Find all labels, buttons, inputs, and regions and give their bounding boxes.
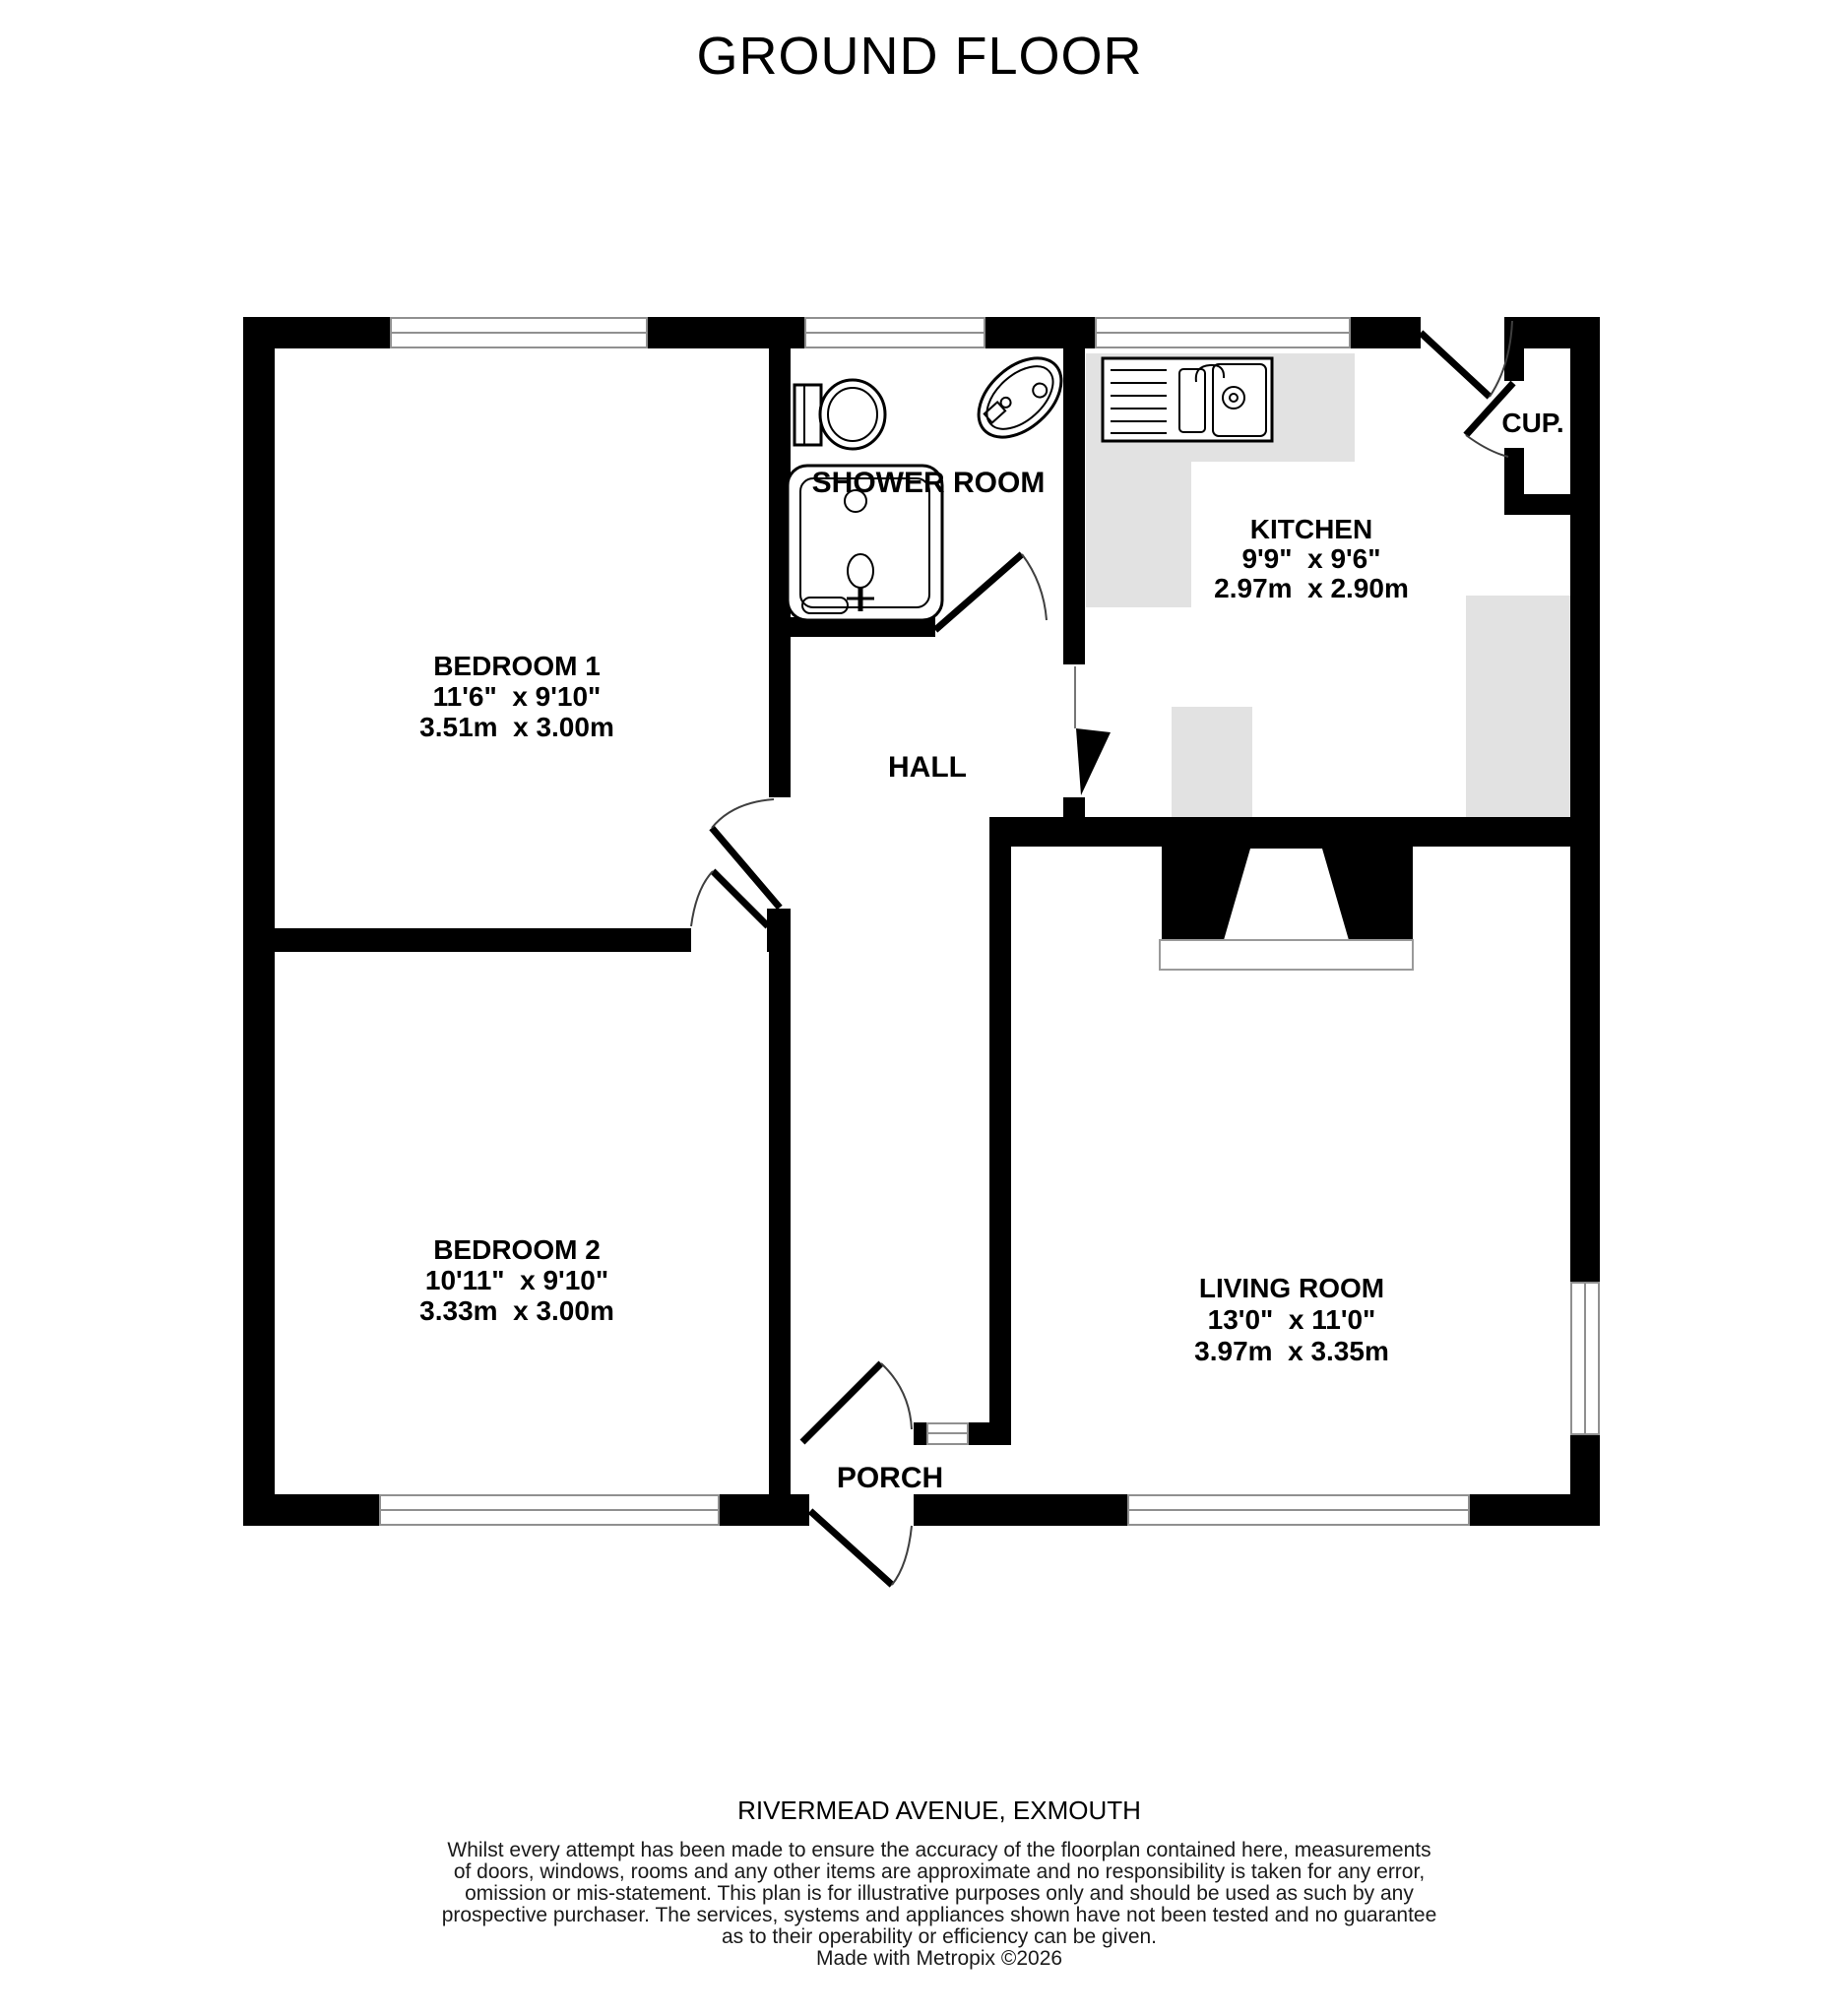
page-title: GROUND FLOOR <box>696 27 1142 86</box>
living-room-name: LIVING ROOM <box>1199 1273 1384 1303</box>
wall-kitchen-living <box>989 817 1570 847</box>
living-room-imperial: 13'0" x 11'0" <box>1208 1304 1376 1335</box>
living-room-side-window <box>1571 1283 1599 1434</box>
toilet-icon <box>794 380 885 449</box>
disclaimer-line4: prospective purchaser. The services, sys… <box>442 1904 1437 1926</box>
disclaimer-line1: Whilst every attempt has been made to en… <box>447 1839 1430 1861</box>
porch-inner-door <box>802 1363 912 1442</box>
wall-shower-kitchen <box>1063 348 1085 664</box>
bedroom1-window <box>391 318 647 347</box>
bedroom2-window <box>380 1495 719 1525</box>
bedroom1-label: BEDROOM 1 11'6" x 9'10" 3.51m x 3.00m <box>419 651 614 742</box>
shower-room-label: SHOWER ROOM <box>812 467 1046 499</box>
disclaimer-line5: as to their operability or efficiency ca… <box>722 1925 1157 1948</box>
wall-top-seg2 <box>647 317 805 348</box>
wall-bottom-seg2 <box>719 1494 809 1526</box>
cup-wall-bottom <box>1504 494 1570 515</box>
living-room-metric: 3.97m x 3.35m <box>1194 1336 1389 1366</box>
wall-hall-left-lower <box>769 952 791 1526</box>
disclaimer: Whilst every attempt has been made to en… <box>442 1839 1437 1970</box>
wall-living-left <box>989 817 1011 1445</box>
bedroom1-name: BEDROOM 1 <box>433 651 601 681</box>
address: RIVERMEAD AVENUE, EXMOUTH <box>737 1795 1141 1825</box>
kitchen-metric: 2.97m x 2.90m <box>1214 573 1409 603</box>
cupboard-label: CUP. <box>1501 408 1563 438</box>
shower-room-door <box>935 554 1047 630</box>
living-room-bottom-window <box>1128 1495 1469 1525</box>
bedroom2-imperial: 10'11" x 9'10" <box>425 1265 608 1295</box>
kitchen-sink-icon <box>1103 358 1272 441</box>
wall-porch-top-pier1 <box>914 1422 927 1445</box>
front-door <box>810 1511 912 1585</box>
counter-bottom-right <box>1466 596 1570 817</box>
porch-label: PORCH <box>837 1462 943 1494</box>
wall-right-upper <box>1570 317 1600 1283</box>
kitchen-label: KITCHEN 9'9" x 9'6" 2.97m x 2.90m <box>1214 514 1409 603</box>
kitchen-window <box>1096 318 1350 347</box>
fireplace <box>1160 847 1413 970</box>
bedroom1-door <box>712 799 780 908</box>
hearth <box>1160 940 1413 970</box>
wall-hall-pier <box>767 909 791 952</box>
hall-label: HALL <box>888 751 967 784</box>
kitchen-imperial: 9'9" x 9'6" <box>1241 543 1380 574</box>
wall-bottom-seg1 <box>243 1494 380 1526</box>
bedroom2-name: BEDROOM 2 <box>433 1234 601 1265</box>
living-room-label: LIVING ROOM 13'0" x 11'0" 3.97m x 3.35m <box>1194 1273 1389 1366</box>
basin-icon <box>964 343 1076 453</box>
wall-porch-top-pier2 <box>968 1422 989 1445</box>
bedroom2-label: BEDROOM 2 10'11" x 9'10" 3.33m x 3.00m <box>419 1234 614 1326</box>
kitchen-name: KITCHEN <box>1250 514 1372 544</box>
metropix-credit: Made with Metropix ©2026 <box>816 1947 1062 1970</box>
wall-top-seg1 <box>243 317 391 348</box>
cup-pier-top <box>1504 317 1524 381</box>
floorplan-canvas: GROUND FLOOR BEDROOM 1 11'6" x 9'10" 3.5… <box>0 0 1843 2016</box>
wall-bedroom-divider <box>273 928 691 952</box>
wall-top-seg3 <box>985 317 1096 348</box>
disclaimer-line3: omission or mis-statement. This plan is … <box>465 1882 1414 1905</box>
counter-bottom-center <box>1172 707 1252 817</box>
bedroom1-metric: 3.51m x 3.00m <box>419 712 614 742</box>
wall-bottom-seg3 <box>914 1494 1128 1526</box>
kitchen-back-door <box>1421 321 1512 397</box>
disclaimer-line2: of doors, windows, rooms and any other i… <box>454 1860 1425 1883</box>
bedroom2-metric: 3.33m x 3.00m <box>419 1295 614 1326</box>
shower-room-window <box>805 318 985 347</box>
bedroom1-imperial: 11'6" x 9'10" <box>433 681 602 712</box>
wall-top-seg4 <box>1350 317 1421 348</box>
kitchen-door <box>1075 666 1111 795</box>
porch-window <box>927 1423 968 1444</box>
wall-left <box>243 317 275 1526</box>
wall-bottom-seg4 <box>1469 1494 1600 1526</box>
